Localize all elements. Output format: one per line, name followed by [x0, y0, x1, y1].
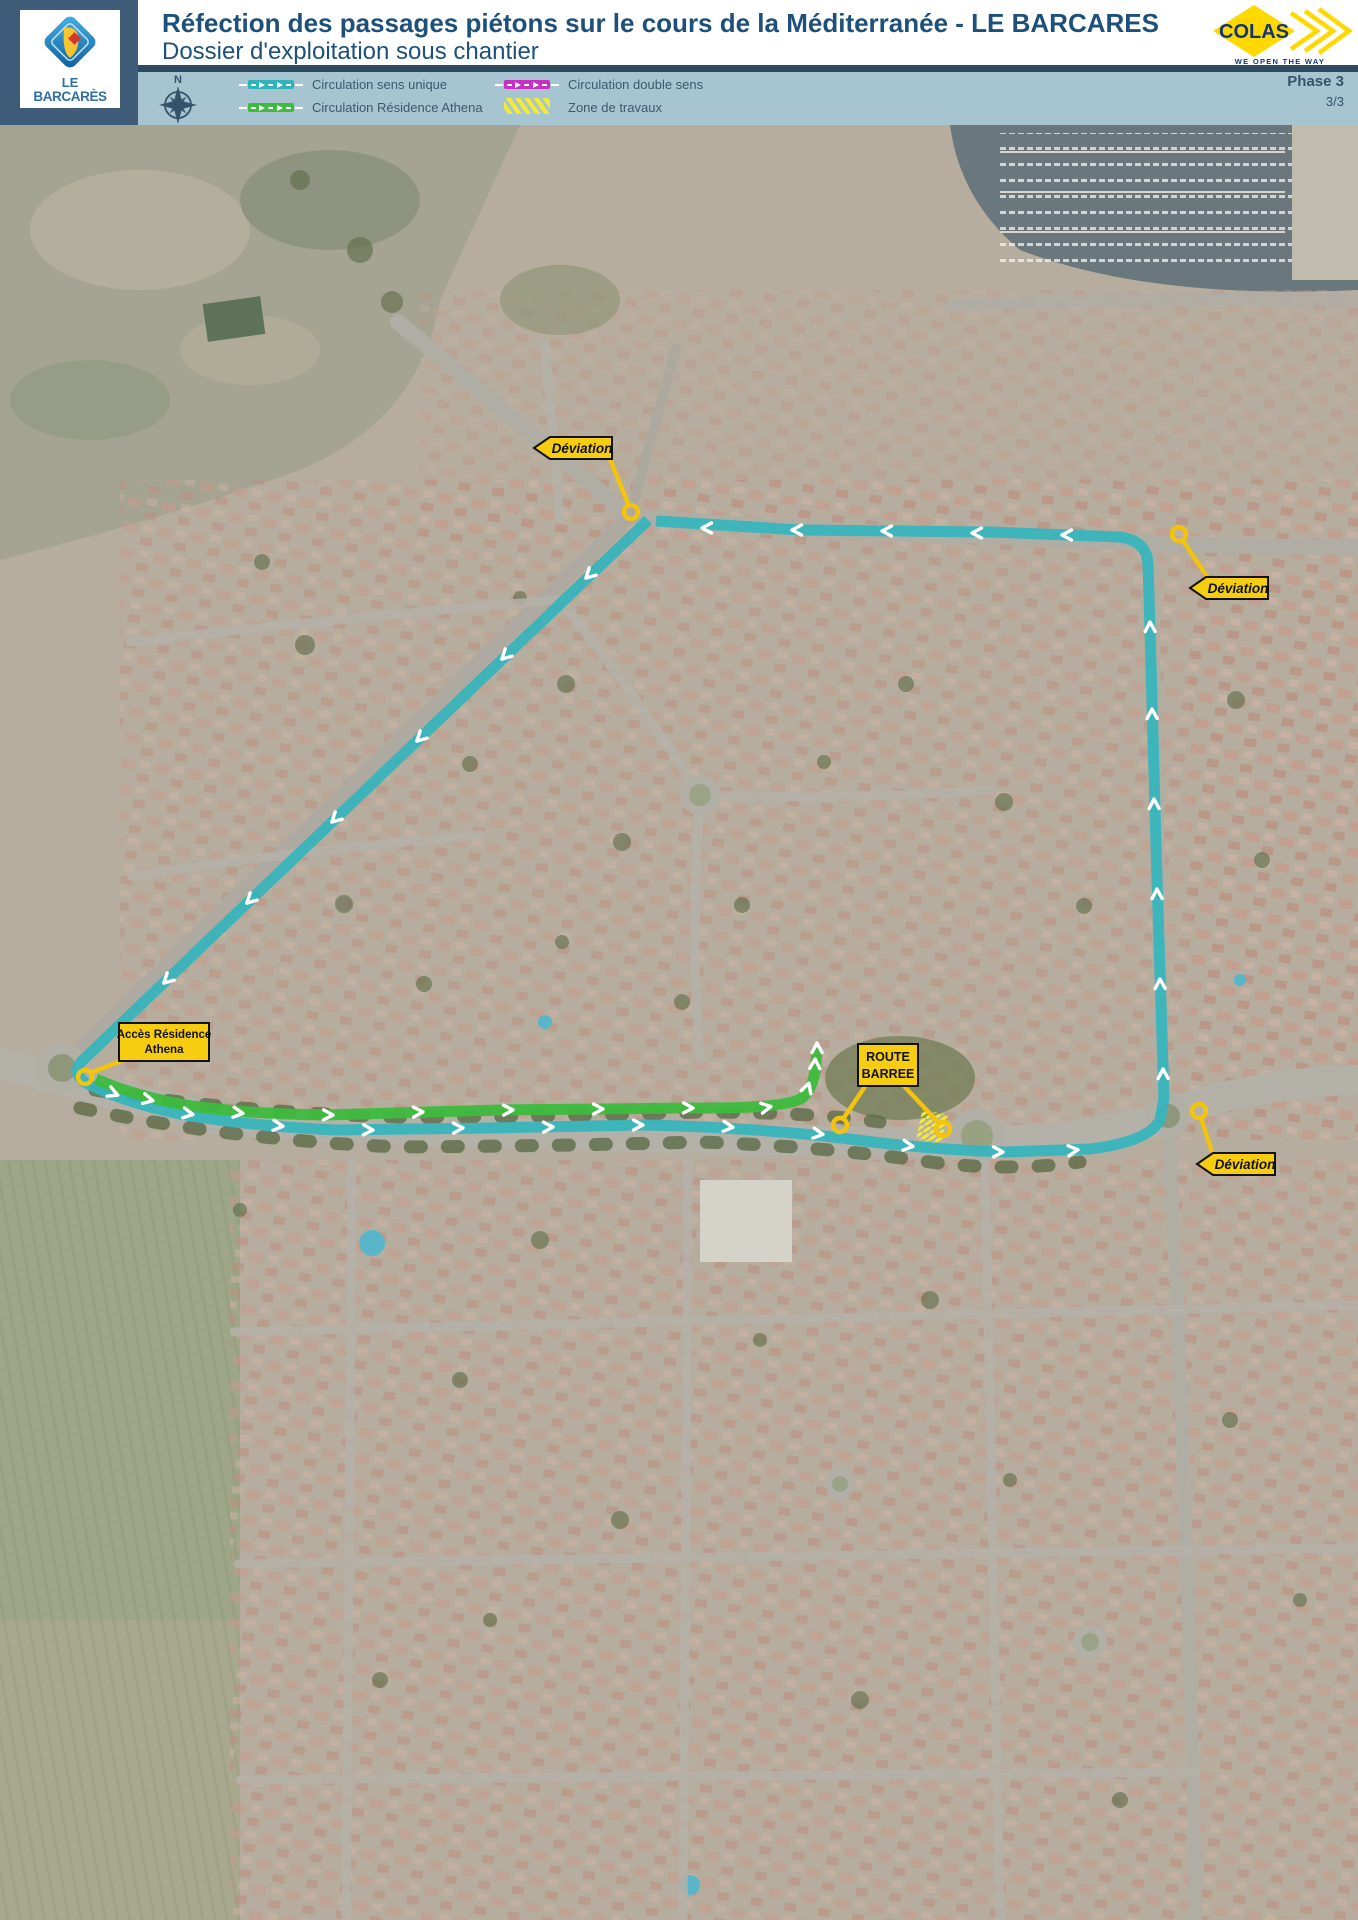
svg-text:Accès Résidence: Accès Résidence: [117, 1029, 212, 1041]
svg-text:Athena: Athena: [145, 1044, 185, 1056]
legend-label: Circulation double sens: [568, 77, 703, 92]
svg-text:Déviation: Déviation: [1215, 1157, 1276, 1172]
barcares-logo-panel: LE BARCARÈS: [0, 0, 138, 125]
acces-residence-sign: Accès Résidence Athena: [117, 1023, 212, 1061]
colas-tagline: WE OPEN THE WAY: [1205, 57, 1355, 66]
svg-text:N: N: [174, 74, 182, 86]
page-number: 3/3: [1287, 94, 1344, 109]
legend-label: Zone de travaux: [568, 100, 662, 115]
svg-text:BARREE: BARREE: [862, 1067, 915, 1081]
phase-block: Phase 3 3/3: [1287, 74, 1344, 109]
svg-text:ROUTE: ROUTE: [866, 1050, 910, 1064]
colas-name: COLAS: [1219, 21, 1289, 43]
legend-swatch-residence-athena: [248, 103, 294, 112]
page-title: Réfection des passages piétons sur le co…: [162, 8, 1159, 39]
barcares-diamond-icon: [34, 10, 106, 74]
page-subtitle: Dossier d'exploitation sous chantier: [162, 38, 539, 66]
legend-item-zone-travaux: Zone de travaux: [504, 100, 662, 115]
barcares-logo-line2: BARCARÈS: [33, 89, 106, 104]
legend-swatch-sens-unique: [248, 80, 294, 89]
deviation-sign-3: Déviation: [1197, 1153, 1275, 1175]
deviation-sign-1: Déviation: [534, 437, 612, 459]
barcares-logo: LE BARCARÈS: [20, 10, 120, 108]
deviation-sign-2: Déviation: [1190, 577, 1268, 599]
plan-sheet: Déviation Déviation Déviation Accès Rési…: [0, 0, 1358, 1920]
phase-label: Phase 3: [1287, 74, 1344, 90]
legend-swatch-double-sens: [504, 80, 550, 89]
barcares-logo-line1: LE: [62, 76, 79, 89]
site-map: Déviation Déviation Déviation Accès Rési…: [0, 0, 1358, 1920]
compass-rose-icon: N: [152, 71, 204, 127]
svg-text:Déviation: Déviation: [552, 441, 613, 456]
svg-text:Déviation: Déviation: [1208, 581, 1269, 596]
legend-label: Circulation Résidence Athena: [312, 100, 483, 115]
colas-chevrons-icon: [1291, 9, 1349, 53]
header-rule: [138, 65, 1358, 72]
legend-item-sens-unique: Circulation sens unique: [248, 77, 447, 92]
legend-item-residence-athena: Circulation Résidence Athena: [248, 100, 483, 115]
legend-label: Circulation sens unique: [312, 77, 447, 92]
legend-item-double-sens: Circulation double sens: [504, 77, 703, 92]
legend-swatch-zone-travaux: [504, 98, 550, 114]
route-barree-sign: ROUTE BARREE: [858, 1044, 918, 1086]
